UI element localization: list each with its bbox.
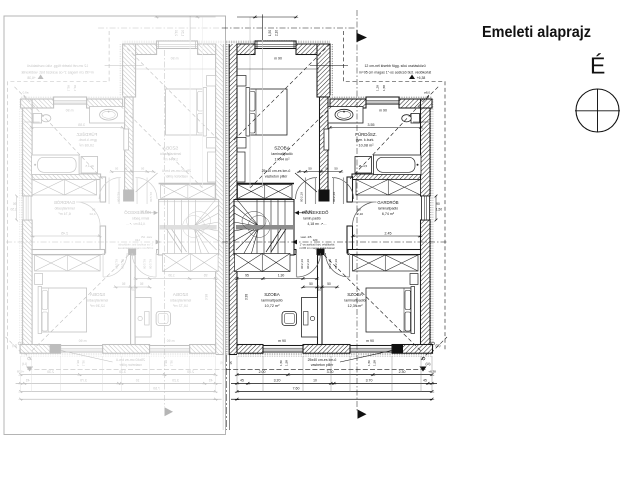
svg-text:1”-os acélcső bizt. védőkorlát: 1”-os acélcső bizt. védőkorlát bbox=[118, 243, 153, 247]
svg-text:2.45: 2.45 bbox=[61, 232, 68, 236]
svg-text:1.30: 1.30 bbox=[278, 274, 285, 278]
svg-text:50: 50 bbox=[327, 282, 331, 286]
svg-text:2,10: 2,10 bbox=[174, 30, 178, 36]
svg-text:90 2,19: 90 2,19 bbox=[306, 259, 310, 269]
svg-text:90 2,19: 90 2,19 bbox=[117, 192, 121, 202]
svg-text:10: 10 bbox=[131, 288, 135, 292]
svg-text:4,18 m² ↗…: 4,18 m² ↗… bbox=[307, 222, 327, 226]
svg-text:m=95 cm magas kialakítással: m=95 cm magas kialakítással bbox=[118, 246, 154, 250]
svg-text:90: 90 bbox=[436, 202, 440, 206]
svg-text:6,74 m²: 6,74 m² bbox=[382, 212, 395, 216]
svg-text:FÜRDőSZ.: FÜRDőSZ. bbox=[76, 132, 97, 137]
svg-text:É: É bbox=[590, 53, 605, 79]
svg-text:SZOBA: SZOBA bbox=[89, 292, 106, 297]
svg-text:1,50: 1,50 bbox=[367, 360, 371, 366]
svg-text:90 2,19: 90 2,19 bbox=[149, 259, 153, 269]
svg-text:95: 95 bbox=[124, 167, 128, 171]
svg-text:m 90: m 90 bbox=[274, 57, 282, 61]
svg-text:+3,30: +3,30 bbox=[303, 210, 312, 214]
svg-text:m 90: m 90 bbox=[379, 109, 387, 113]
svg-text:90 2,19: 90 2,19 bbox=[300, 259, 304, 269]
svg-text:95: 95 bbox=[325, 167, 329, 171]
svg-text:m=95 cm magas 1”-os acélcső bi: m=95 cm magas 1”-os acélcső bizt. védőko… bbox=[21, 71, 93, 75]
svg-text:3.38: 3.38 bbox=[245, 294, 249, 300]
svg-text:90 2,19: 90 2,19 bbox=[328, 259, 332, 269]
svg-text:90 2,19: 90 2,19 bbox=[143, 259, 147, 269]
svg-text:1,50: 1,50 bbox=[279, 360, 283, 366]
svg-text:3.30: 3.30 bbox=[119, 370, 126, 374]
svg-text:laminaltpadló: laminaltpadló bbox=[261, 299, 282, 303]
svg-text:10: 10 bbox=[313, 378, 317, 382]
svg-text:95: 95 bbox=[245, 274, 249, 278]
svg-text:3.70: 3.70 bbox=[80, 378, 87, 382]
svg-text:SZOBA: SZOBA bbox=[347, 292, 364, 297]
svg-text:45: 45 bbox=[240, 378, 244, 382]
svg-text:1,50: 1,50 bbox=[10, 208, 16, 212]
svg-text:laminaltpadló: laminaltpadló bbox=[87, 299, 108, 303]
svg-text:25x40 cm-es km-ű: 25x40 cm-es km-ű bbox=[262, 169, 291, 173]
svg-text:m 90: m 90 bbox=[66, 109, 74, 113]
svg-text:1,28: 1,28 bbox=[376, 85, 380, 91]
svg-text:1,58: 1,58 bbox=[285, 360, 289, 366]
svg-text:m 90: m 90 bbox=[366, 339, 374, 343]
svg-text:m 90: m 90 bbox=[171, 57, 179, 61]
svg-text:90 2,19: 90 2,19 bbox=[300, 192, 304, 202]
svg-text:2,10: 2,10 bbox=[357, 212, 363, 216]
svg-text:laminaltpadló: laminaltpadló bbox=[160, 152, 181, 156]
svg-text:2.00: 2.00 bbox=[187, 370, 194, 374]
svg-text:50: 50 bbox=[308, 167, 312, 171]
svg-text:10,08 m²: 10,08 m² bbox=[359, 144, 375, 148]
svg-text:1,50: 1,50 bbox=[82, 360, 86, 366]
svg-text:vasbeton pillér: vasbeton pillér bbox=[265, 175, 288, 179]
svg-text:10: 10 bbox=[318, 288, 322, 292]
svg-text:25x40 cm-es km-ű: 25x40 cm-es km-ű bbox=[308, 358, 337, 362]
svg-text:7.60: 7.60 bbox=[153, 387, 160, 391]
svg-text:95: 95 bbox=[204, 274, 208, 278]
svg-text:90 2,19: 90 2,19 bbox=[332, 192, 336, 202]
svg-text:laminaltpadló: laminaltpadló bbox=[344, 299, 365, 303]
svg-text:laminaltpadló: laminaltpadló bbox=[170, 299, 191, 303]
svg-text:12,39 m²: 12,39 m² bbox=[348, 304, 364, 308]
svg-text:50: 50 bbox=[141, 167, 145, 171]
svg-text:45: 45 bbox=[423, 378, 427, 382]
svg-text:3.70: 3.70 bbox=[366, 378, 373, 382]
svg-text:2.30: 2.30 bbox=[399, 370, 406, 374]
svg-text:10: 10 bbox=[136, 378, 140, 382]
svg-text:vasbeton pillér: vasbeton pillér bbox=[164, 175, 187, 179]
svg-text:Emeleti alaprajz: Emeleti alaprajz bbox=[482, 24, 591, 41]
svg-text:(Lt): (Lt) bbox=[22, 362, 27, 366]
svg-text:laminaltpadló: laminaltpadló bbox=[54, 207, 74, 211]
svg-text:50: 50 bbox=[140, 282, 144, 286]
svg-text:vast. 4/5: vast. 4/5 bbox=[141, 235, 152, 239]
svg-text:12 cm-nél kisebb függ. síkú os: 12 cm-nél kisebb függ. síkú osztásközű bbox=[27, 64, 88, 68]
svg-text:17,44 m²: 17,44 m² bbox=[275, 158, 291, 162]
svg-text:1,58: 1,58 bbox=[67, 85, 71, 91]
svg-text:50: 50 bbox=[122, 282, 126, 286]
svg-text:m 90: m 90 bbox=[278, 339, 286, 343]
svg-text:m=95 cm magas kialakítással: m=95 cm magas kialakítással bbox=[299, 246, 335, 250]
svg-text:1,58: 1,58 bbox=[382, 85, 386, 91]
svg-text:1.30: 1.30 bbox=[168, 274, 175, 278]
svg-text:2.45: 2.45 bbox=[385, 232, 392, 236]
svg-text:laminaltpadló: laminaltpadló bbox=[271, 152, 292, 156]
svg-text:lamin.padló: lamin.padló bbox=[132, 217, 149, 221]
svg-text:gym. k.burk.: gym. k.burk. bbox=[356, 138, 375, 142]
svg-text:50: 50 bbox=[115, 167, 119, 171]
svg-text:90 2,19: 90 2,19 bbox=[115, 259, 119, 269]
svg-text:Ø+4,5: Ø+4,5 bbox=[359, 164, 368, 168]
svg-text:SZOBA: SZOBA bbox=[172, 292, 189, 297]
svg-text:Ø+4,5: Ø+4,5 bbox=[85, 164, 94, 168]
svg-text:6,74 m²: 6,74 m² bbox=[58, 212, 71, 216]
svg-text:3.55: 3.55 bbox=[78, 123, 85, 127]
svg-text:2.00: 2.00 bbox=[259, 370, 266, 374]
svg-text:3.55: 3.55 bbox=[368, 123, 375, 127]
svg-text:SZOBA: SZOBA bbox=[274, 146, 291, 151]
svg-text:m=95 cm magas 1”-os acélcső bi: m=95 cm magas 1”-os acélcső bizt. védőko… bbox=[359, 71, 431, 75]
svg-text:10,72 m²: 10,72 m² bbox=[265, 304, 281, 308]
svg-text:vasbeton pillér: vasbeton pillér bbox=[311, 363, 334, 367]
svg-text:vasbeton pillér: vasbeton pillér bbox=[118, 363, 141, 367]
svg-text:(Lt): (Lt) bbox=[12, 344, 17, 348]
svg-text:10,72 m²: 10,72 m² bbox=[172, 304, 188, 308]
svg-text:2.30: 2.30 bbox=[47, 370, 54, 374]
svg-text:7.60: 7.60 bbox=[293, 387, 300, 391]
svg-text:45: 45 bbox=[209, 378, 213, 382]
svg-text:10,08 m²: 10,08 m² bbox=[78, 144, 94, 148]
svg-text:SZOBA: SZOBA bbox=[264, 292, 281, 297]
svg-text:25x40 cm-es km-ű: 25x40 cm-es km-ű bbox=[116, 358, 145, 362]
svg-text:1,50: 1,50 bbox=[170, 360, 174, 366]
svg-text:3.30: 3.30 bbox=[327, 370, 334, 374]
svg-text:GARDRÓB: GARDRÓB bbox=[377, 200, 398, 205]
svg-text:FÜRDőSZ.: FÜRDőSZ. bbox=[355, 132, 376, 137]
svg-text:3.20: 3.20 bbox=[274, 378, 281, 382]
svg-text:1,50: 1,50 bbox=[268, 30, 272, 36]
svg-text:+6,38: +6,38 bbox=[27, 76, 36, 80]
svg-text:25x40 cm-es km-ű: 25x40 cm-es km-ű bbox=[162, 169, 191, 173]
svg-text:45: 45 bbox=[26, 378, 30, 382]
svg-text:GARDRÓB: GARDRÓB bbox=[54, 200, 75, 205]
svg-text:1,50: 1,50 bbox=[181, 30, 185, 36]
svg-text:3.20: 3.20 bbox=[172, 378, 179, 382]
svg-text:vast. 4/5: vast. 4/5 bbox=[301, 235, 312, 239]
svg-text:4,18 m² ↗…: 4,18 m² ↗… bbox=[125, 222, 145, 226]
svg-text:50: 50 bbox=[309, 282, 313, 286]
svg-text:ø8,0: ø8,0 bbox=[424, 91, 430, 95]
svg-text:12 cm-nél kisebb függ. síkú os: 12 cm-nél kisebb függ. síkú osztásközű bbox=[364, 64, 425, 68]
svg-text:3.38: 3.38 bbox=[204, 294, 208, 300]
svg-text:m 90: m 90 bbox=[79, 339, 87, 343]
svg-text:lamin.padló: lamin.padló bbox=[303, 217, 320, 221]
svg-text:gym. k.burk.: gym. k.burk. bbox=[78, 138, 97, 142]
svg-text:90: 90 bbox=[13, 202, 17, 206]
svg-text:1,28: 1,28 bbox=[73, 85, 77, 91]
svg-text:2,10: 2,10 bbox=[275, 30, 279, 36]
svg-text:50: 50 bbox=[334, 167, 338, 171]
svg-text:1,58: 1,58 bbox=[76, 360, 80, 366]
svg-text:laminaltpadló: laminaltpadló bbox=[378, 207, 398, 211]
svg-text:120: 120 bbox=[135, 238, 140, 242]
svg-text:2,10: 2,10 bbox=[89, 212, 95, 216]
svg-text:+6,38: +6,38 bbox=[417, 76, 426, 80]
svg-text:120: 120 bbox=[313, 238, 318, 242]
svg-text:(Lt): (Lt) bbox=[436, 344, 441, 348]
svg-text:90 2,19: 90 2,19 bbox=[121, 259, 125, 269]
svg-text:12,39 m²: 12,39 m² bbox=[89, 304, 105, 308]
svg-text:90 2,19: 90 2,19 bbox=[334, 259, 338, 269]
svg-text:90 2,19: 90 2,19 bbox=[149, 192, 153, 202]
svg-text:+3,30: +3,30 bbox=[140, 210, 149, 214]
svg-text:1”-os acélcső bizt. védőkorlát: 1”-os acélcső bizt. védőkorlát bbox=[300, 243, 335, 247]
svg-text:ø8,0: ø8,0 bbox=[22, 91, 28, 95]
svg-text:1,50: 1,50 bbox=[436, 208, 442, 212]
svg-text:1,58: 1,58 bbox=[373, 360, 377, 366]
svg-text:m 90: m 90 bbox=[167, 339, 175, 343]
svg-text:(Lt): (Lt) bbox=[426, 362, 431, 366]
